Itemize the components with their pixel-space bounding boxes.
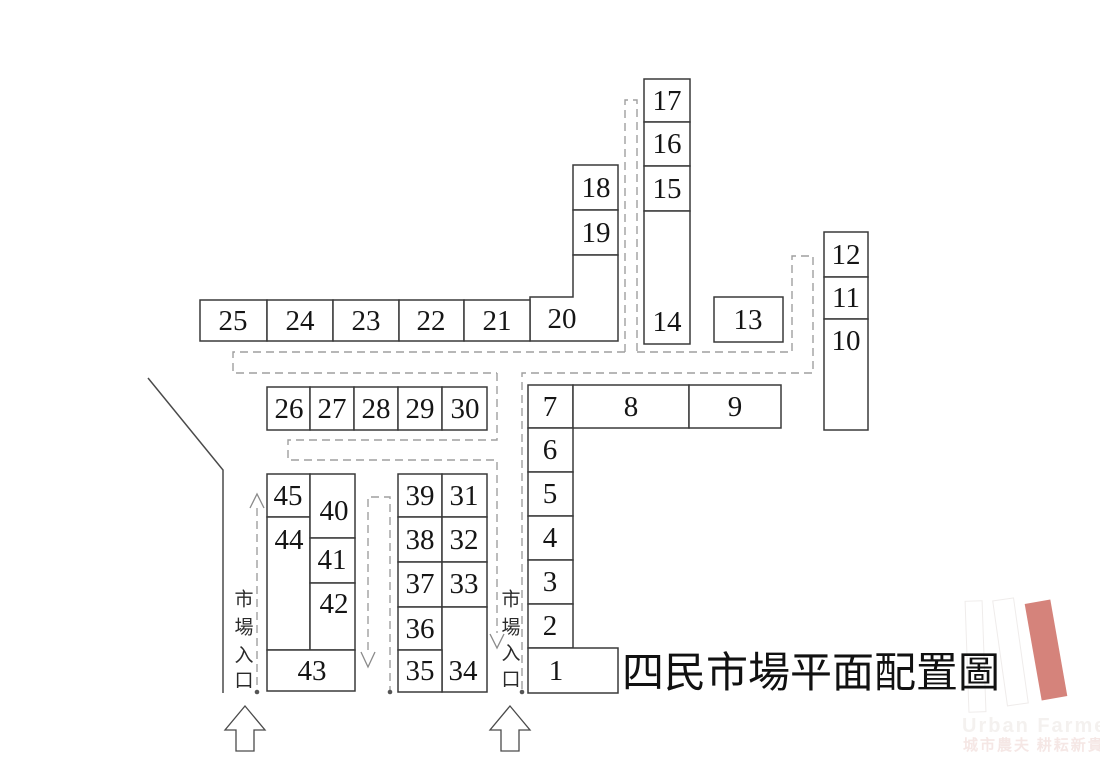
stall-42-label: 42 bbox=[320, 588, 349, 620]
stall-10-label: 10 bbox=[832, 325, 861, 357]
boundary-line bbox=[148, 378, 223, 693]
stall-22-label: 22 bbox=[417, 305, 446, 337]
stall-16-label: 16 bbox=[653, 128, 682, 160]
stall-41-label: 41 bbox=[318, 544, 347, 576]
logo-text-en: Urban Farmer bbox=[962, 715, 1100, 737]
logo-bar-red bbox=[1025, 599, 1068, 700]
stall-34-label: 34 bbox=[449, 655, 479, 687]
market-entrance-label-center: 市 場 入 口 bbox=[501, 589, 520, 691]
stall-outlines bbox=[200, 79, 868, 693]
stall-44-label: 44 bbox=[275, 524, 305, 556]
stall-5-label: 5 bbox=[543, 478, 558, 510]
page-title: 四民市場平面配置圖 bbox=[622, 650, 1000, 697]
stall-24-label: 24 bbox=[286, 305, 316, 337]
stall-29-label: 29 bbox=[406, 393, 435, 425]
stall-12-label: 12 bbox=[832, 239, 861, 271]
arrow-down-icon bbox=[361, 652, 375, 667]
stall-19-label: 19 bbox=[582, 217, 611, 249]
walkway-top-corridor bbox=[625, 100, 637, 352]
stall-33-label: 33 bbox=[450, 568, 479, 600]
logo-text-zh: 城市農夫 耕耘新貴 bbox=[963, 736, 1100, 754]
stall-28-label: 28 bbox=[362, 393, 391, 425]
stall-14-label: 14 bbox=[653, 306, 683, 338]
entrance-arrow-up-icon bbox=[225, 706, 265, 751]
entrance-char: 市 bbox=[234, 589, 253, 611]
entrance-char: 入 bbox=[501, 644, 520, 665]
walkway-endpoint-dot bbox=[388, 690, 393, 695]
stall-4-label: 4 bbox=[543, 522, 558, 554]
entrance-char: 入 bbox=[234, 646, 253, 667]
stall-7-label: 7 bbox=[543, 391, 558, 423]
stall-36-label: 36 bbox=[406, 613, 435, 645]
stall-25-label: 25 bbox=[219, 305, 248, 337]
stall-45-label: 45 bbox=[274, 480, 303, 512]
stall-2-label: 2 bbox=[543, 610, 558, 642]
stall-31-label: 31 bbox=[450, 480, 479, 512]
stall-3-label: 3 bbox=[543, 566, 558, 598]
stall-18-label: 18 bbox=[582, 172, 611, 204]
stall-8-label: 8 bbox=[624, 391, 639, 423]
entrance-char: 市 bbox=[501, 589, 520, 611]
entrance-char: 口 bbox=[234, 671, 253, 692]
stall-35-label: 35 bbox=[406, 655, 435, 687]
market-entrance-label-left: 市 場 入 口 bbox=[234, 589, 253, 692]
walkway-upper-left bbox=[233, 352, 625, 373]
entrance-char: 場 bbox=[234, 617, 253, 639]
stall-17-label: 17 bbox=[653, 85, 682, 117]
walkway-endpoint-dot bbox=[255, 690, 260, 695]
floor-plan-svg: 25 24 23 22 21 20 18 19 17 16 15 14 13 1… bbox=[0, 0, 1100, 778]
stall-1 bbox=[528, 648, 618, 693]
stall-15-label: 15 bbox=[653, 173, 682, 205]
stall-43-label: 43 bbox=[298, 655, 327, 687]
entrance-arrows bbox=[225, 706, 530, 751]
stall-32-label: 32 bbox=[450, 524, 479, 556]
floor-plan-page: 25 24 23 22 21 20 18 19 17 16 15 14 13 1… bbox=[0, 0, 1100, 778]
stall-1-label: 1 bbox=[549, 655, 564, 687]
entrance-char: 場 bbox=[501, 617, 520, 639]
stall-30-label: 30 bbox=[451, 393, 480, 425]
stall-27-label: 27 bbox=[318, 393, 347, 425]
entrance-arrow-up-icon bbox=[490, 706, 530, 751]
stall-9-label: 9 bbox=[728, 391, 743, 423]
stall-40-label: 40 bbox=[320, 495, 349, 527]
stall-26-label: 26 bbox=[275, 393, 304, 425]
stall-38-label: 38 bbox=[406, 524, 435, 556]
stall-11-label: 11 bbox=[832, 282, 860, 314]
stall-37-label: 37 bbox=[406, 568, 435, 600]
arrow-up-icon bbox=[250, 494, 264, 508]
stall-21-label: 21 bbox=[483, 305, 512, 337]
walkway-between-groups bbox=[368, 497, 390, 692]
stall-6-label: 6 bbox=[543, 434, 558, 466]
stall-13-label: 13 bbox=[734, 304, 763, 336]
entrance-char: 口 bbox=[501, 670, 520, 691]
stall-20-label: 20 bbox=[548, 303, 577, 335]
stall-39-label: 39 bbox=[406, 480, 435, 512]
stall-23-label: 23 bbox=[352, 305, 381, 337]
